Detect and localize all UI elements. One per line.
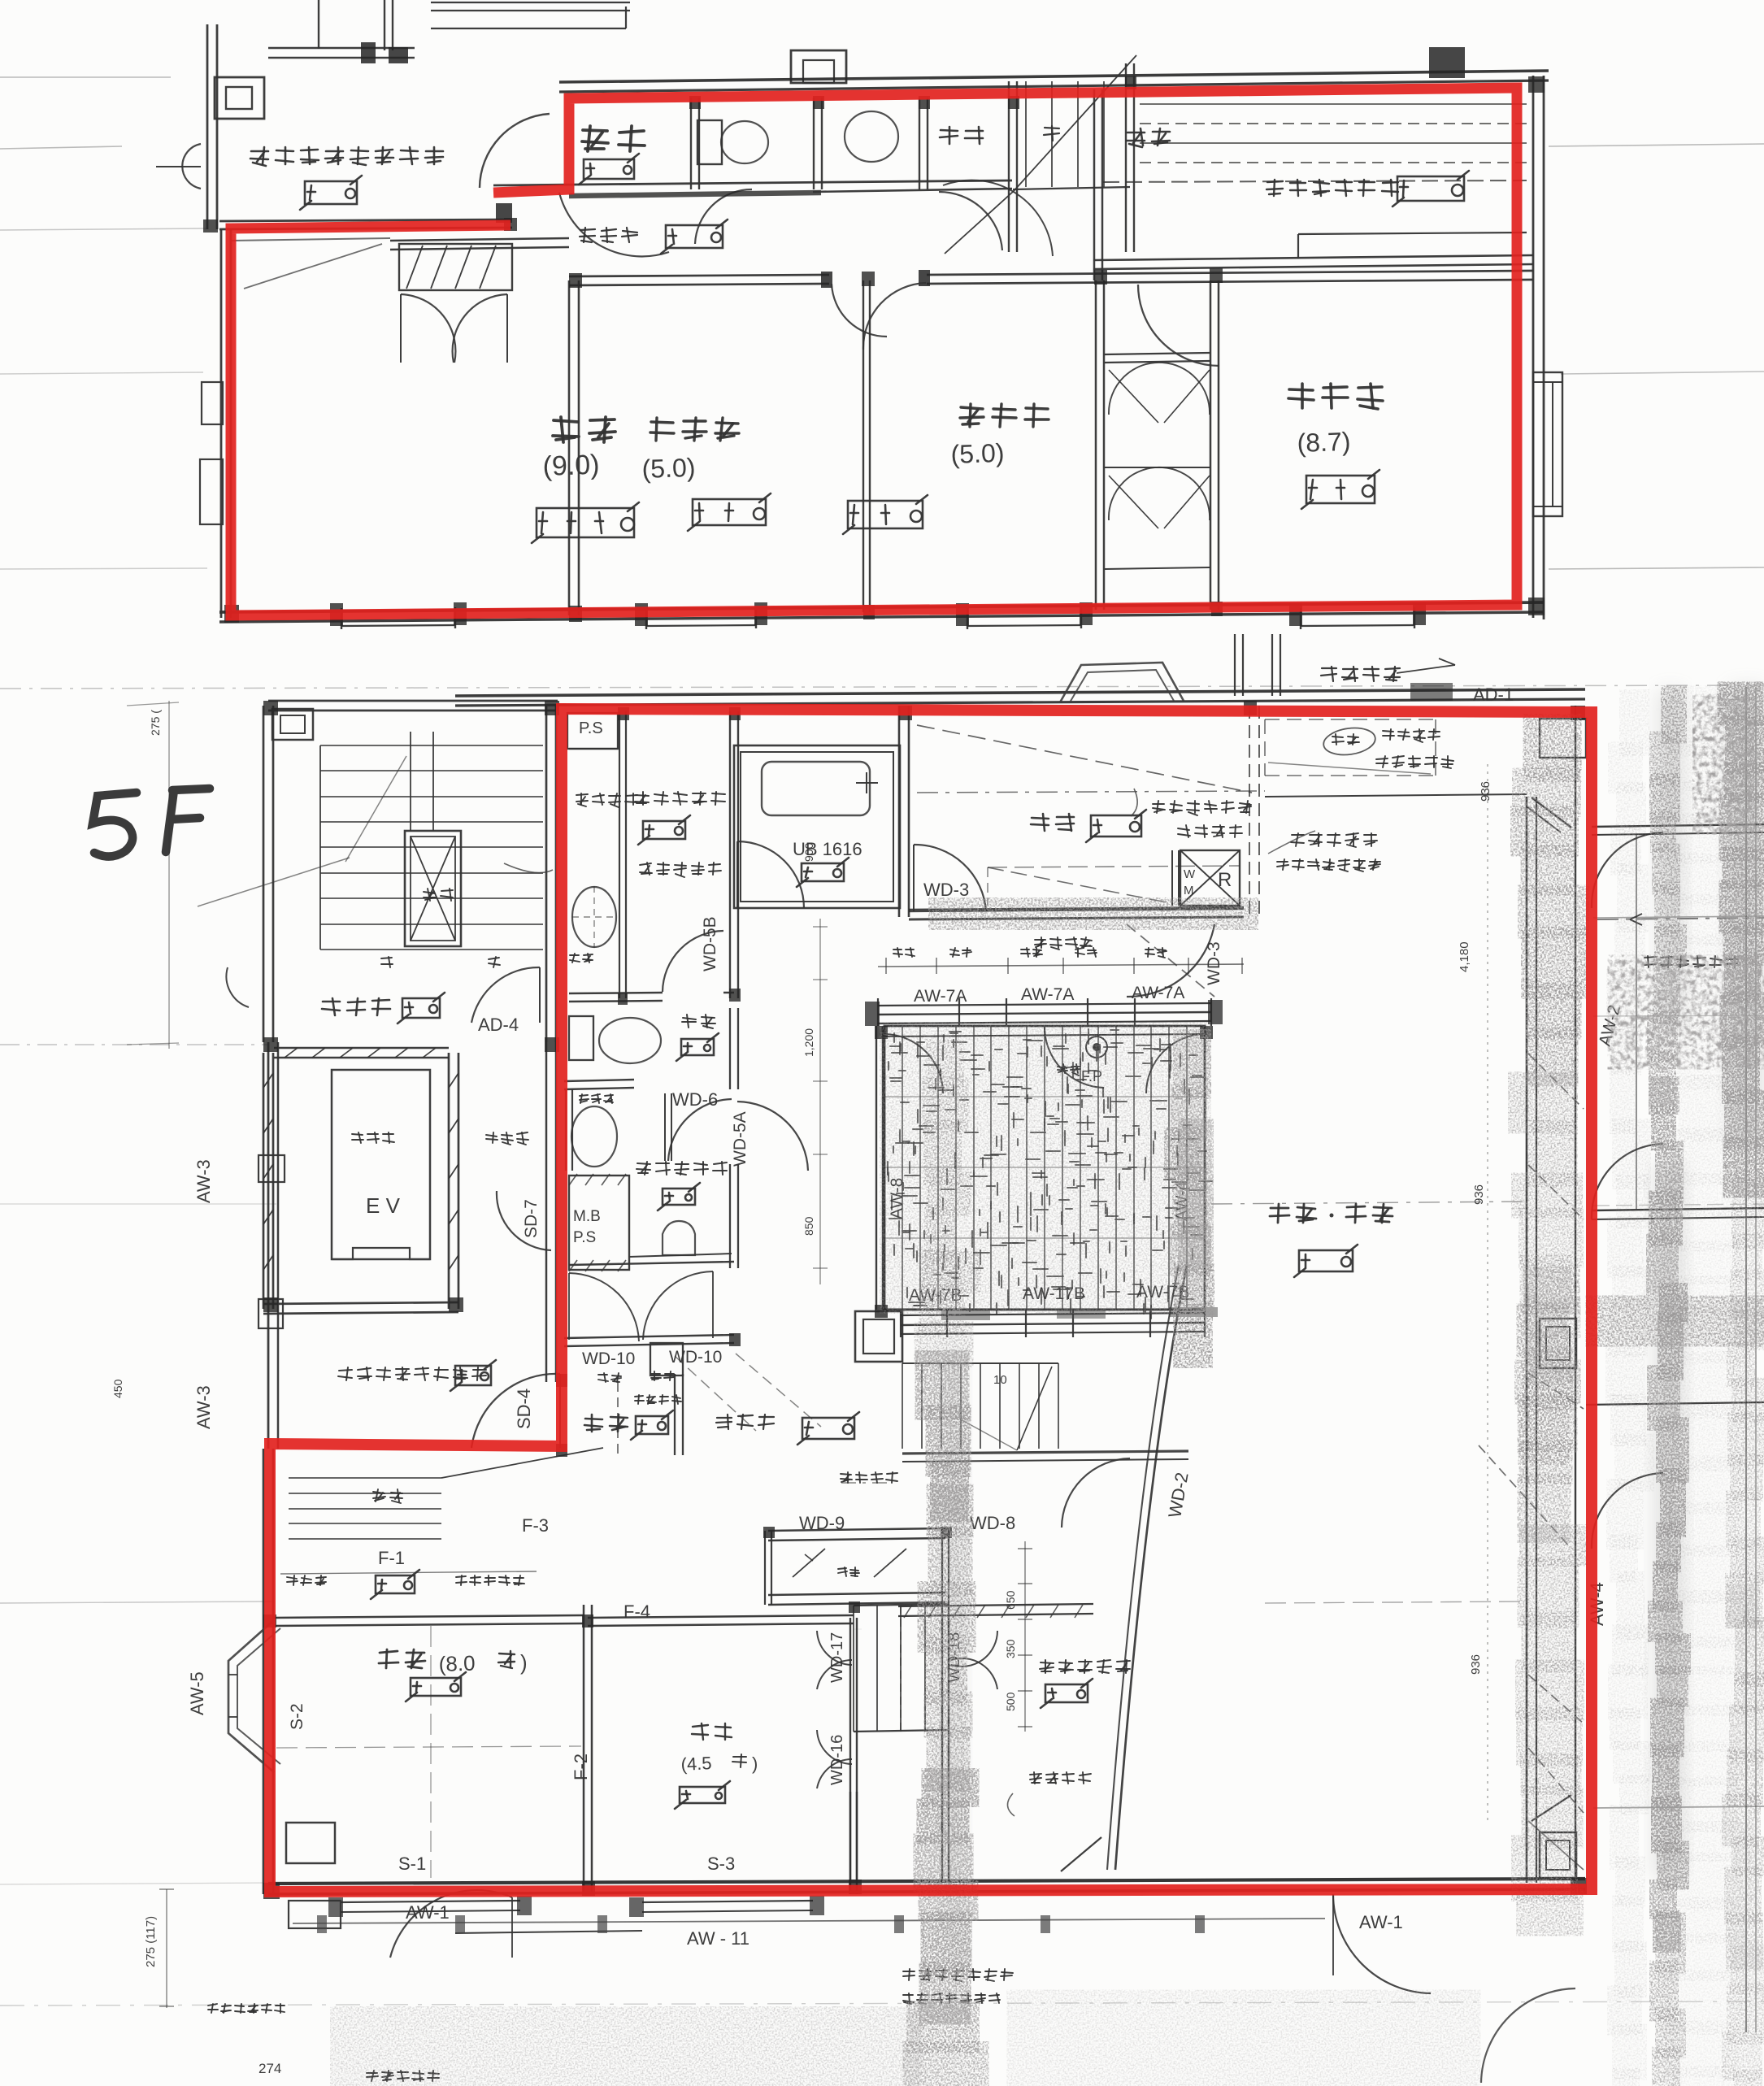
svg-text:(8.0: (8.0: [438, 1650, 476, 1676]
svg-text:936: 936: [1472, 1184, 1486, 1205]
svg-text:S-2: S-2: [288, 1703, 306, 1730]
svg-text:R: R: [1218, 869, 1232, 891]
svg-text:(5.0): (5.0): [950, 438, 1005, 469]
svg-text:WD-10: WD-10: [582, 1349, 635, 1368]
svg-text:WD-8: WD-8: [970, 1513, 1015, 1533]
svg-text:274: 274: [259, 2061, 281, 2076]
svg-text:(4.5: (4.5: [680, 1753, 712, 1775]
svg-text:4,180: 4,180: [1458, 941, 1471, 972]
svg-text:M.B: M.B: [573, 1208, 601, 1225]
svg-text:AD-1: AD-1: [1473, 684, 1514, 705]
svg-text:P.S: P.S: [579, 719, 603, 737]
svg-text:): ): [520, 1650, 528, 1675]
svg-text:AW-1: AW-1: [406, 1902, 450, 1923]
svg-text:(9.0): (9.0): [542, 450, 600, 482]
svg-text:SD-7: SD-7: [522, 1199, 541, 1238]
svg-text:AD-4: AD-4: [478, 1015, 519, 1035]
svg-text:WD-17: WD-17: [828, 1632, 846, 1683]
svg-text:WD-9: WD-9: [799, 1513, 845, 1533]
svg-text:E V: E V: [366, 1193, 401, 1218]
svg-text:450: 450: [111, 1379, 124, 1398]
svg-text:AW-7A: AW-7A: [1021, 985, 1074, 1004]
svg-text:AW-5: AW-5: [187, 1671, 207, 1715]
svg-text:WD-3: WD-3: [1205, 941, 1223, 985]
svg-text:AW-3: AW-3: [193, 1385, 214, 1429]
svg-text:900: 900: [802, 842, 815, 862]
svg-text:F-1: F-1: [378, 1548, 405, 1568]
svg-text:1,200: 1,200: [802, 1028, 815, 1057]
svg-text:S-3: S-3: [707, 1853, 735, 1874]
svg-text:AW-1: AW-1: [1359, 1912, 1403, 1932]
svg-text:10: 10: [993, 1373, 1007, 1387]
svg-text:AW-7A: AW-7A: [914, 987, 967, 1006]
svg-text:WD-5A: WD-5A: [731, 1111, 749, 1167]
svg-text:F-2: F-2: [571, 1754, 591, 1780]
svg-text:AW-3: AW-3: [193, 1159, 214, 1203]
svg-text:W: W: [1184, 867, 1196, 881]
svg-text:F-3: F-3: [522, 1515, 549, 1536]
svg-text:500: 500: [1004, 1692, 1017, 1711]
svg-text:AW-7A: AW-7A: [1132, 984, 1184, 1002]
svg-text:WD-10: WD-10: [669, 1348, 722, 1367]
svg-text:(8.7): (8.7): [1297, 427, 1351, 458]
svg-text:SD-4: SD-4: [514, 1388, 534, 1429]
svg-text:M: M: [1184, 884, 1194, 897]
svg-text:AW - 11: AW - 11: [687, 1928, 749, 1949]
svg-text:850: 850: [802, 1216, 815, 1236]
svg-text:350: 350: [1004, 1639, 1017, 1658]
svg-text:936: 936: [1469, 1654, 1483, 1675]
svg-text:S-1: S-1: [398, 1853, 426, 1874]
svg-text:(5.0): (5.0): [641, 453, 696, 484]
svg-text:650: 650: [1004, 1590, 1017, 1610]
svg-text:275 (: 275 (: [149, 710, 162, 736]
svg-text:WD-5B: WD-5B: [701, 916, 719, 971]
svg-text:WD-6: WD-6: [672, 1089, 718, 1110]
svg-text:F-4: F-4: [623, 1601, 650, 1622]
svg-text:275 (117): 275 (117): [144, 1916, 158, 1967]
svg-text:WD-3: WD-3: [923, 880, 969, 900]
svg-text:): ): [752, 1754, 758, 1774]
svg-text:WD-16: WD-16: [828, 1735, 846, 1785]
svg-text:P.S: P.S: [573, 1229, 596, 1246]
svg-text:936: 936: [1479, 781, 1492, 802]
